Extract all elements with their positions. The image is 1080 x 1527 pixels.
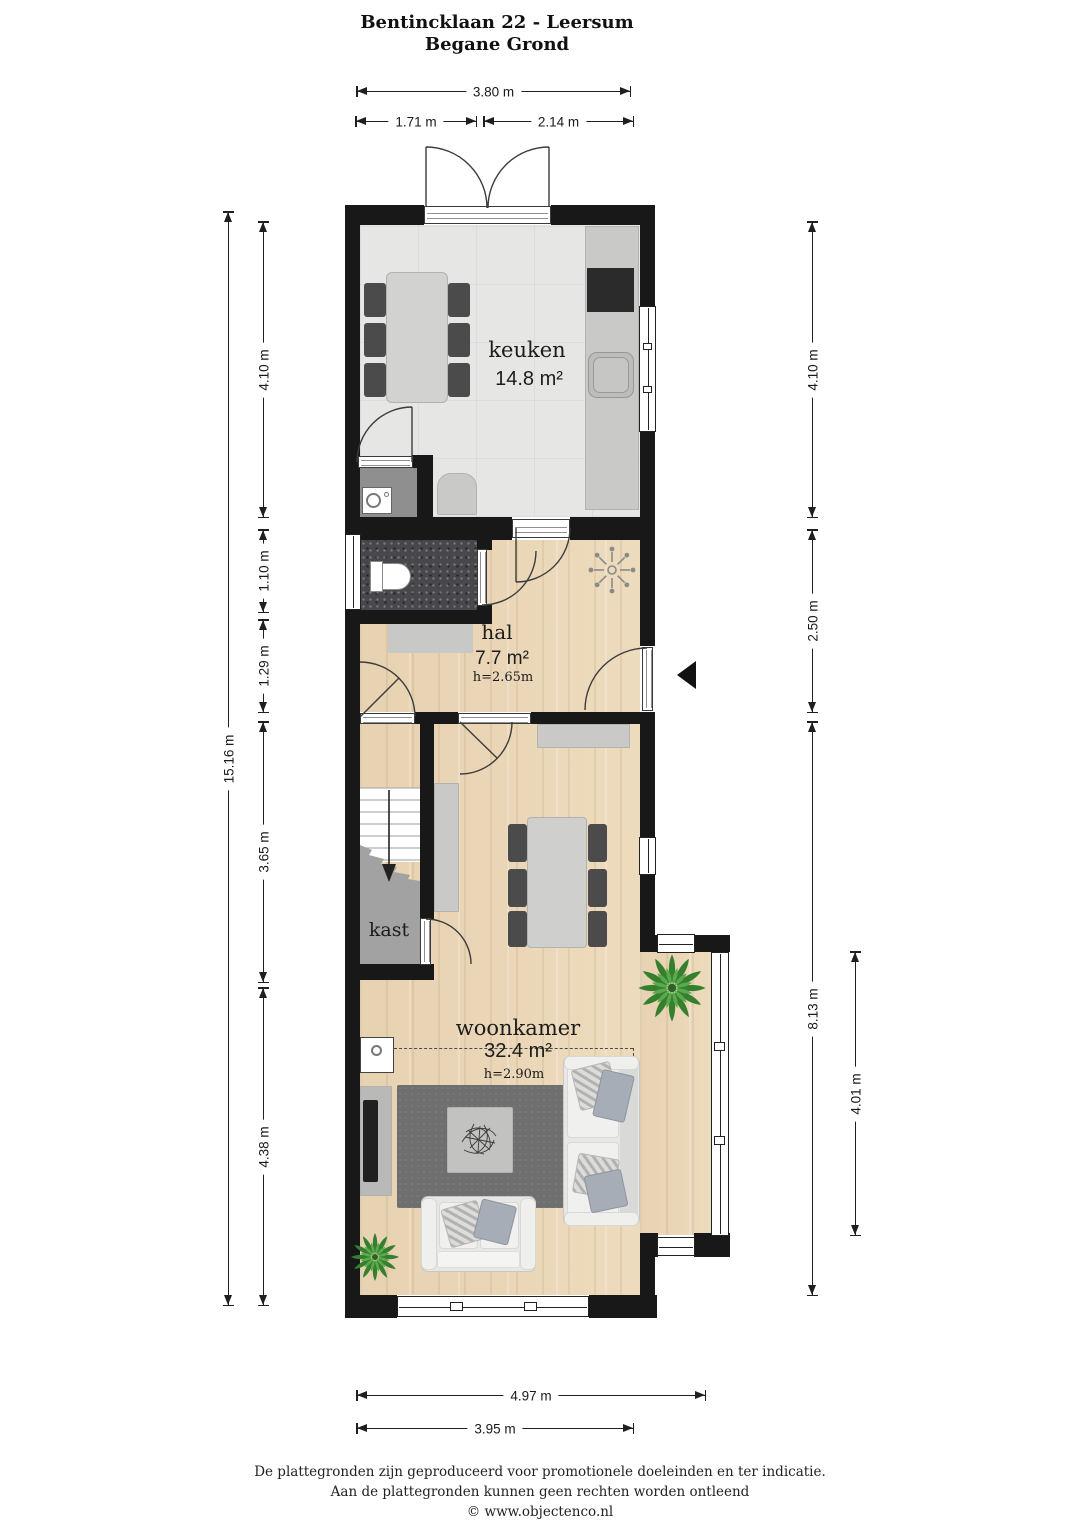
dimension-left-5: 4.38 m bbox=[263, 988, 264, 1305]
wall-segment bbox=[694, 935, 730, 952]
coffee-table bbox=[447, 1107, 513, 1173]
sofa-armrest bbox=[564, 1212, 639, 1226]
tall-cabinet bbox=[434, 783, 459, 912]
window-mullion bbox=[714, 1136, 725, 1145]
dim-tick bbox=[807, 221, 818, 223]
dining-table bbox=[527, 817, 587, 948]
chair bbox=[508, 824, 527, 862]
room-label-woonkamer: woonkamer bbox=[418, 1016, 618, 1040]
chair bbox=[448, 283, 470, 317]
window-mullion bbox=[643, 343, 652, 350]
dimension-label: 4.10 m bbox=[257, 342, 272, 397]
wall-segment bbox=[640, 205, 655, 306]
dim-tick bbox=[258, 987, 269, 989]
chair bbox=[364, 323, 386, 357]
dimension-label: 3.80 m bbox=[466, 85, 521, 100]
room-label-keuken: keuken bbox=[427, 338, 627, 362]
dim-tick bbox=[223, 1305, 234, 1307]
chair bbox=[588, 869, 607, 907]
floorplan-page: Bentincklaan 22 - Leersum Begane Grond bbox=[0, 0, 1080, 1527]
livingroom-door-sill bbox=[458, 713, 531, 724]
footer-line1: De plattegronden zijn geproduceerd voor … bbox=[0, 1462, 1080, 1482]
wall-segment bbox=[345, 205, 360, 534]
dim-tick bbox=[633, 116, 635, 127]
dim-tick bbox=[807, 712, 818, 714]
dimension-top-left: 1.71 m bbox=[356, 121, 476, 122]
dim-tick bbox=[850, 1235, 861, 1237]
wall-segment bbox=[345, 712, 360, 724]
dimension-top-right: 2.14 m bbox=[484, 121, 633, 122]
window bbox=[657, 934, 695, 953]
dimension-bottom-outer: 4.97 m bbox=[357, 1395, 705, 1396]
dim-tick bbox=[476, 116, 478, 127]
dimension-label: 3.95 m bbox=[467, 1422, 522, 1437]
footer-line2: Aan de plattegronden kunnen geen rechten… bbox=[0, 1482, 1080, 1502]
wall-segment bbox=[345, 964, 434, 980]
window bbox=[345, 534, 361, 610]
dim-tick bbox=[258, 529, 269, 531]
chair bbox=[508, 911, 527, 947]
dim-tick bbox=[483, 116, 485, 127]
utility-door-sill bbox=[358, 456, 413, 468]
stove-pipe-ring bbox=[371, 1045, 382, 1056]
dimension-left-total: 15.16 m bbox=[228, 212, 229, 1305]
dimension-right-3: 8.13 m bbox=[812, 722, 813, 1295]
dimension-label: 4.38 m bbox=[257, 1119, 272, 1174]
window-mullion bbox=[524, 1302, 537, 1311]
dim-tick bbox=[807, 529, 818, 531]
dimension-right-2: 2.50 m bbox=[812, 530, 813, 712]
dimension-left-1: 4.10 m bbox=[263, 222, 264, 517]
dimension-label: 4.10 m bbox=[806, 342, 821, 397]
stove-cooktop bbox=[587, 268, 634, 312]
dim-tick bbox=[807, 721, 818, 723]
window-mullion bbox=[450, 1302, 463, 1311]
footer-line3: © www.objectenco.nl bbox=[0, 1502, 1080, 1522]
dimension-label: 15.16 m bbox=[222, 727, 237, 790]
dimension-label: 2.14 m bbox=[531, 115, 586, 130]
tv bbox=[363, 1100, 378, 1182]
pillow bbox=[583, 1168, 628, 1213]
dimension-top-total: 3.80 m bbox=[357, 91, 630, 92]
room-area-woonkamer: 32.4 m² bbox=[418, 1040, 618, 1063]
page-title: Bentincklaan 22 - Leersum Begane Grond bbox=[197, 12, 797, 56]
dimension-left-2: 1.10 m bbox=[263, 530, 264, 612]
room-ceiling-hal: h=2.65m bbox=[403, 670, 603, 685]
wall-segment bbox=[420, 722, 434, 919]
window bbox=[639, 837, 656, 875]
wall-segment bbox=[531, 712, 655, 724]
title-line1: Bentincklaan 22 - Leersum bbox=[197, 12, 797, 34]
dim-tick bbox=[258, 517, 269, 519]
dimension-label: 1.29 m bbox=[257, 638, 272, 693]
dimension-left-4: 3.65 m bbox=[263, 722, 264, 982]
kitchen-cabinet bbox=[437, 473, 477, 515]
dimension-label: 2.50 m bbox=[806, 593, 821, 648]
wall-segment bbox=[694, 1233, 730, 1257]
dimension-label: 8.13 m bbox=[806, 981, 821, 1036]
wall-segment bbox=[640, 712, 655, 837]
entrance-arrow-icon bbox=[677, 661, 696, 689]
dim-tick bbox=[258, 1305, 269, 1307]
sideboard bbox=[537, 724, 630, 748]
chair bbox=[364, 283, 386, 317]
wall-segment bbox=[640, 935, 658, 952]
dim-tick bbox=[807, 517, 818, 519]
window bbox=[397, 1296, 589, 1317]
wall-segment bbox=[477, 530, 492, 550]
title-line2: Begane Grond bbox=[197, 34, 797, 56]
dim-tick bbox=[850, 951, 861, 953]
washing-machine bbox=[362, 487, 392, 514]
stairs bbox=[360, 788, 420, 862]
washing-machine-door bbox=[366, 493, 381, 508]
dim-tick bbox=[633, 1423, 635, 1434]
dim-tick bbox=[356, 86, 358, 97]
dimension-right-bay: 4.01 m bbox=[855, 952, 856, 1235]
dim-tick bbox=[705, 1390, 707, 1401]
room-label-kast: kast bbox=[289, 919, 489, 941]
dimension-label: 1.10 m bbox=[257, 543, 272, 598]
dim-tick bbox=[258, 612, 269, 614]
wall-segment bbox=[417, 455, 433, 517]
wall-segment bbox=[345, 1295, 397, 1318]
entrance-double-door-sill bbox=[424, 206, 551, 224]
washing-machine-knob bbox=[384, 492, 389, 497]
dim-tick bbox=[258, 982, 269, 984]
dim-tick bbox=[223, 211, 234, 213]
dimension-label: 1.71 m bbox=[388, 115, 443, 130]
loveseat bbox=[421, 1196, 536, 1272]
window bbox=[711, 952, 729, 1236]
front-door-panel bbox=[642, 647, 653, 711]
chair bbox=[364, 363, 386, 397]
dimension-label: 3.65 m bbox=[257, 824, 272, 879]
chair bbox=[508, 869, 527, 907]
loveseat-armrest bbox=[520, 1198, 536, 1270]
dimension-right-1: 4.10 m bbox=[812, 222, 813, 517]
bay-window-floor bbox=[640, 952, 713, 1235]
dim-tick bbox=[258, 619, 269, 621]
room-area-hal: 7.7 m² bbox=[402, 648, 602, 670]
wall-segment bbox=[640, 875, 655, 935]
wood-stove bbox=[360, 1037, 394, 1073]
footer-disclaimer: De plattegronden zijn geproduceerd voor … bbox=[0, 1462, 1080, 1522]
dim-tick bbox=[258, 221, 269, 223]
dimension-left-3: 1.29 m bbox=[263, 620, 264, 712]
room-label-hal: hal bbox=[397, 620, 597, 644]
wall-segment bbox=[640, 1233, 658, 1257]
dimension-label: 4.97 m bbox=[503, 1389, 558, 1404]
hall-door-sill bbox=[360, 713, 415, 724]
room-ceiling-woonkamer: h=2.90m bbox=[414, 1067, 614, 1082]
loveseat-armrest bbox=[421, 1198, 437, 1270]
dim-tick bbox=[258, 712, 269, 714]
dim-tick bbox=[630, 86, 632, 97]
toilet-bowl bbox=[382, 563, 411, 590]
window-mullion bbox=[714, 1042, 725, 1051]
wall-segment bbox=[589, 1295, 657, 1318]
dim-tick bbox=[356, 1423, 358, 1434]
dim-tick bbox=[356, 1390, 358, 1401]
loveseat-seat-front bbox=[437, 1251, 520, 1268]
kitchen-door-sill bbox=[512, 519, 570, 538]
dimension-bottom-inner: 3.95 m bbox=[357, 1428, 633, 1429]
chair bbox=[588, 911, 607, 947]
window bbox=[639, 306, 656, 432]
dim-tick bbox=[258, 721, 269, 723]
toilet-door-panel bbox=[477, 549, 487, 606]
dim-tick bbox=[807, 1295, 818, 1297]
room-area-keuken: 14.8 m² bbox=[429, 368, 629, 391]
window bbox=[657, 1237, 695, 1256]
dimension-label: 4.01 m bbox=[849, 1066, 864, 1121]
window-mullion bbox=[643, 386, 652, 393]
chair bbox=[588, 824, 607, 862]
dim-tick bbox=[355, 116, 357, 127]
wall-segment bbox=[570, 517, 655, 540]
